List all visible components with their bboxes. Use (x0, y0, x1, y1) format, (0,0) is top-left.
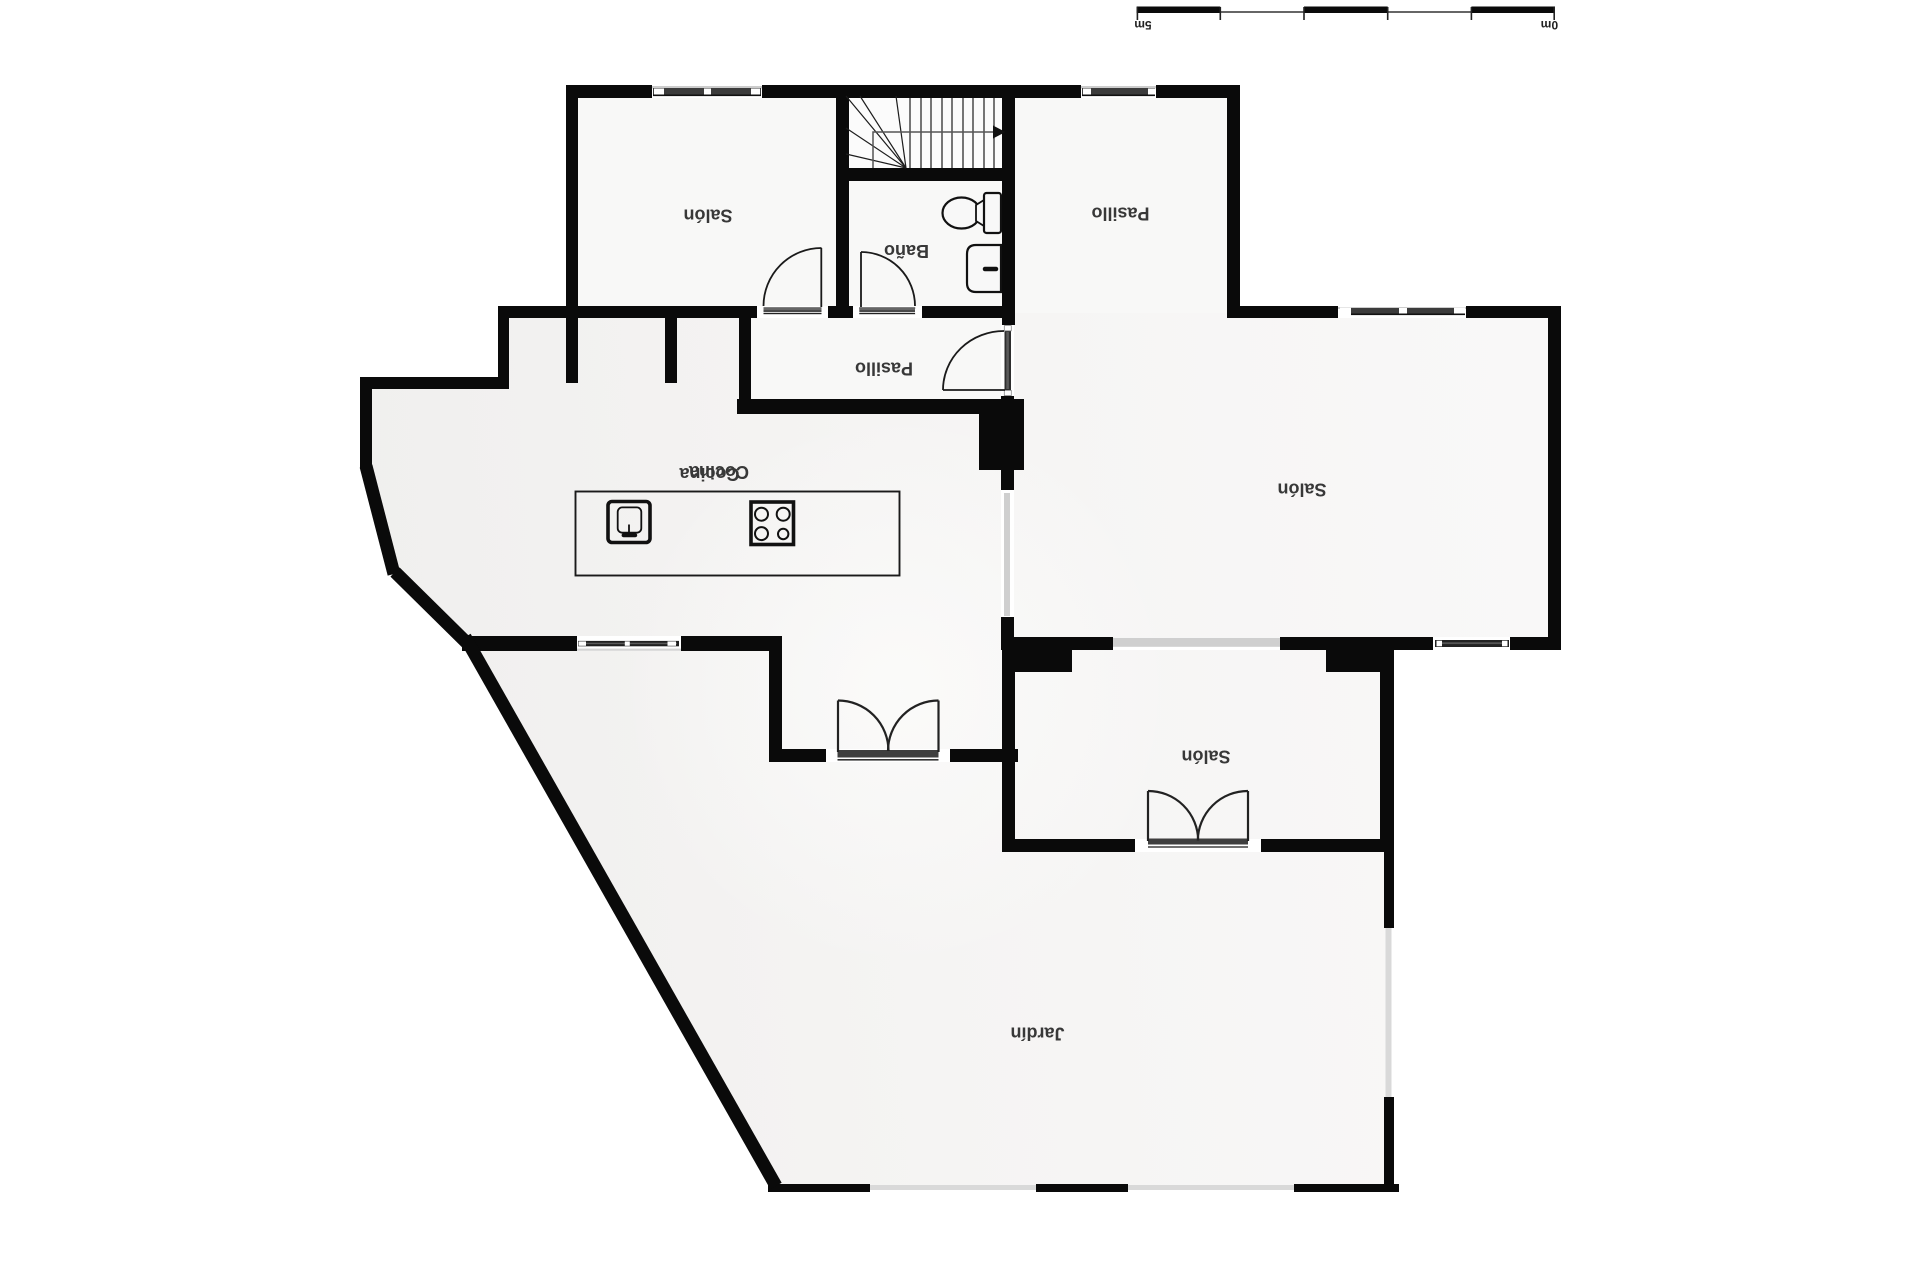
svg-text:Cocina: Cocina (688, 462, 749, 482)
svg-text:Salón: Salón (1277, 480, 1326, 500)
svg-text:Salón: Salón (1181, 747, 1230, 767)
svg-text:0m: 0m (1541, 18, 1558, 32)
svg-text:Pasillo: Pasillo (855, 359, 913, 379)
svg-text:Jardín: Jardín (1010, 1024, 1064, 1044)
svg-text:Baño: Baño (884, 241, 929, 261)
svg-text:5m: 5m (1134, 18, 1151, 32)
svg-text:Salón: Salón (683, 206, 732, 226)
svg-text:Pasillo: Pasillo (1091, 204, 1149, 224)
